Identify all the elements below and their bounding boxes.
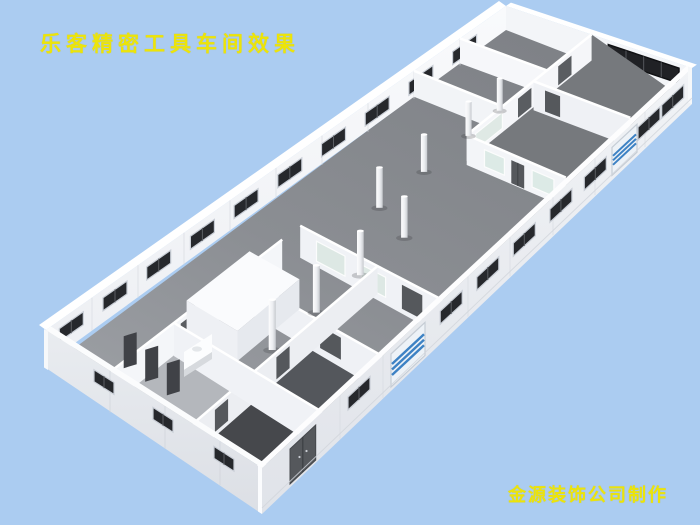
corner-post: [258, 466, 262, 515]
workshop-3d-render: [0, 0, 700, 525]
credit-text: 金源装饰公司制作: [508, 481, 668, 507]
title-text: 乐客精密工具车间效果: [40, 28, 300, 58]
corner-post: [44, 329, 48, 370]
workshop-render-page: 乐客精密工具车间效果 金源装饰公司制作: [0, 0, 700, 525]
